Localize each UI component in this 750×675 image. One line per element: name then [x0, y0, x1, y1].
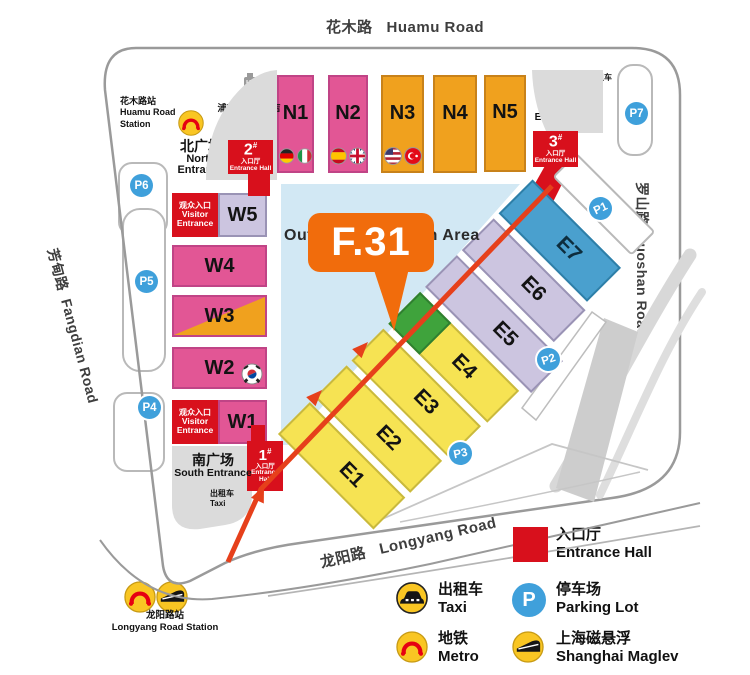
legend-taxi: 出租车Taxi: [438, 581, 483, 617]
road-label-huamu: 花木路 Huamu Road: [326, 16, 484, 37]
flag-row: [279, 147, 312, 165]
road-label-fangdian: 芳甸路 Fangdian Road: [43, 246, 104, 406]
east-entrance-label: 东广场 East Entrance: [530, 98, 606, 123]
hall-label: E4: [446, 349, 481, 384]
sniec-venue-map: E1 E2 E3 E4 E5 E6 E7 N1: [0, 0, 750, 675]
hall-w4: W4: [172, 245, 267, 287]
south-entrance-label: 南广场 South Entrance: [174, 453, 252, 480]
hall-w5: W5: [218, 193, 267, 237]
kerry-hotel-building-icon: [242, 73, 258, 105]
north-entrance-label: 北广场 North Entrance: [168, 139, 234, 177]
hall-n4: N4: [433, 75, 477, 173]
entrance-hall-1: 1# 入口厅 Entrance Hall: [247, 441, 283, 491]
entrance-hall-label-en: Entrance Hall: [535, 158, 577, 165]
parking-badge-p4: P4: [138, 396, 161, 419]
entrance-hall-2: 2# 入口厅 Entrance Hall: [228, 140, 273, 174]
hall-label: W4: [205, 255, 235, 278]
parking-badge-p5: P5: [135, 270, 158, 293]
hall-label: E1: [333, 458, 368, 493]
maglev-icon-longyang-station: [156, 581, 188, 613]
legend-entrance-hall-swatch: [513, 527, 548, 562]
hall-label: W3: [205, 305, 235, 328]
metro-icon-huamu-station: [178, 110, 204, 136]
flag-uk-icon: [349, 147, 366, 165]
road-label-longyang: 龙阳路 Longyang Road: [318, 511, 498, 572]
taxi-icon-legend: [396, 582, 428, 614]
longyang-station-label: 龙阳路站Longyang Road Station: [98, 610, 232, 635]
entrance-hall-1-stub: [251, 425, 265, 442]
entrance-hall-3: 3# 入口厅 Entrance Hall: [533, 131, 578, 167]
hall-n3: N3: [381, 75, 424, 173]
metro-icon-legend: [396, 631, 428, 663]
hall-label: E3: [408, 385, 443, 420]
hall-w3: W3: [172, 295, 267, 337]
parking-badge-p6: P6: [130, 174, 153, 197]
entrance-hall-label-en: Entrance Hall: [230, 166, 272, 173]
flag-spain-icon: [330, 147, 347, 165]
hall-label: N4: [442, 102, 468, 125]
hall-label: E6: [515, 272, 550, 307]
hall-label: N5: [492, 101, 518, 124]
taxi-icon-south-entrance: [182, 486, 208, 512]
hall-label: E5: [487, 317, 522, 352]
huamu-station-label: 花木路站Huamu RoadStation: [120, 96, 176, 130]
hall-label: W5: [228, 204, 258, 227]
flag-turkey-icon: [404, 147, 422, 165]
legend-entrance-hall: 入口厅Entrance Hall: [556, 526, 652, 562]
flag-row: [330, 147, 366, 165]
visitor-entrance-w1: 观众入口 Visitor Entrance: [172, 400, 218, 444]
flag-usa-icon: [384, 147, 402, 165]
hall-n2: N2: [328, 75, 368, 173]
metro-icon-longyang-station: [124, 581, 156, 613]
visitor-entrance-w5: 观众入口 Visitor Entrance: [172, 193, 218, 237]
hall-label: E2: [370, 421, 405, 456]
visitor-entrance-label-en2: Entrance: [177, 426, 213, 435]
parking-icon-legend: P: [512, 583, 546, 617]
flag-south-korea-icon: [241, 363, 263, 385]
flag-row: [383, 147, 422, 165]
hall-label: N2: [335, 102, 361, 125]
flag-germany-icon: [279, 147, 295, 165]
parking-badge-p7: P7: [625, 102, 648, 125]
legend-metro: 地铁Metro: [438, 630, 479, 666]
entrance-hall-label-en2: Hall: [259, 477, 271, 484]
visitor-entrance-label-en2: Entrance: [177, 219, 213, 228]
entrance-hall-2-stub: [248, 174, 270, 196]
south-taxi-label: 出租车Taxi: [210, 489, 234, 510]
legend-parking: 停车场Parking Lot: [556, 581, 639, 617]
taxi-icon-east-entrance: [560, 70, 586, 96]
hall-n5: N5: [484, 75, 526, 172]
booth-marker-f31: F.31: [308, 213, 434, 272]
kerry-hotel-label: 浦东嘉里大酒店Kerry Hotel: [206, 103, 292, 126]
hall-label: N3: [390, 102, 416, 125]
road-label-luoshan: 罗山路 Luoshan Road: [632, 182, 652, 338]
hall-w2: W2: [172, 347, 267, 389]
hall-label: E7: [551, 232, 586, 267]
legend-maglev: 上海磁悬浮Shanghai Maglev: [556, 630, 679, 666]
flag-italy-icon: [297, 147, 313, 165]
east-taxi-label: 出租车Taxi: [588, 73, 612, 94]
hall-label: W2: [205, 357, 235, 380]
maglev-icon-legend: [512, 631, 544, 663]
